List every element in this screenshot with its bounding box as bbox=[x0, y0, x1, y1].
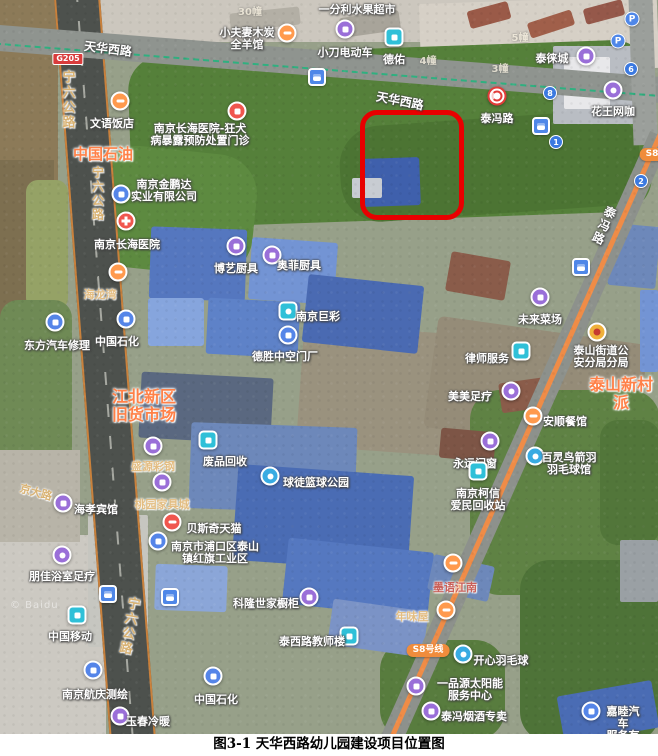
poi-icon bbox=[204, 667, 223, 686]
poi-label: 球徒篮球公园 bbox=[283, 477, 349, 489]
poi-label: 中国移动 bbox=[48, 631, 92, 643]
poi-icon bbox=[84, 661, 103, 680]
poi-icon bbox=[300, 588, 319, 607]
poi-label: 盛源彩钢 bbox=[131, 461, 175, 473]
building-number: 4幢 bbox=[420, 52, 437, 67]
poi-label: 南京市浦口区泰山 镇红旗工业区 bbox=[171, 541, 259, 565]
poi-icon bbox=[336, 20, 355, 39]
poi-label: 未来菜场 bbox=[518, 314, 562, 326]
poi-icon bbox=[153, 473, 172, 492]
parking-icon: P bbox=[625, 12, 640, 27]
poi-label: 南京柯信 爱民回收站 bbox=[451, 488, 506, 512]
poi-label: 小夫妻木炭 全羊馆 bbox=[220, 27, 275, 51]
poi-icon bbox=[524, 407, 543, 426]
project-site-highlight-box bbox=[360, 110, 464, 220]
poi-icon bbox=[149, 532, 168, 551]
poi-icon bbox=[227, 237, 246, 256]
poi-label: 中国石化 bbox=[194, 694, 238, 706]
poi-label: 中国石化 bbox=[95, 336, 139, 348]
metro-station-icon bbox=[488, 87, 507, 106]
metro-line-badge: S8 bbox=[640, 148, 658, 161]
highway-shield-badge: G205 bbox=[52, 53, 83, 65]
poi-icon bbox=[437, 601, 456, 620]
map-watermark: © Baidu bbox=[10, 600, 59, 611]
poi-icon bbox=[385, 28, 404, 47]
poi-icon bbox=[512, 342, 531, 361]
poi-label: 海孝宾馆 bbox=[74, 504, 118, 516]
bus-stop-icon bbox=[99, 585, 117, 603]
poi-icon bbox=[279, 302, 298, 321]
poi-icon bbox=[54, 494, 73, 513]
poi-label: 南京巨彩 bbox=[296, 311, 340, 323]
bus-stop-icon bbox=[161, 588, 179, 606]
poi-label: 一品源太阳能 服务中心 bbox=[437, 678, 503, 702]
bus-stop-icon bbox=[572, 258, 590, 276]
poi-label: 墨语江南 bbox=[433, 582, 477, 594]
poi-icon bbox=[502, 382, 521, 401]
poi-icon bbox=[422, 702, 441, 721]
poi-label: 泰徕城 bbox=[536, 53, 569, 65]
poi-icon bbox=[531, 288, 550, 307]
poi-label: 玉春冷暖 bbox=[126, 716, 170, 728]
poi-label: 博艺厨具 bbox=[214, 263, 258, 275]
poi-icon bbox=[577, 47, 596, 66]
area-label: 中国石油 bbox=[73, 146, 133, 163]
poi-icon bbox=[144, 437, 163, 456]
poi-icon bbox=[481, 432, 500, 451]
poi-icon bbox=[163, 513, 182, 532]
poi-icon bbox=[261, 467, 280, 486]
poi-icon bbox=[604, 81, 623, 100]
poi-label: 德胜中空门厂 bbox=[252, 351, 318, 363]
poi-label: 律师服务 bbox=[465, 353, 509, 365]
poi-icon bbox=[199, 431, 218, 450]
poi-label: 东方汽车修理 bbox=[24, 340, 90, 352]
poi-icon bbox=[53, 546, 72, 565]
poi-label: 科隆世家橱柜 bbox=[233, 598, 299, 610]
figure-caption: 图3-1 天华西路幼儿园建设项目位置图 bbox=[0, 734, 658, 756]
area-label: 江北新区 旧货市场 bbox=[112, 388, 176, 424]
road-label: 宁六公路 bbox=[90, 166, 107, 222]
poi-icon bbox=[278, 24, 297, 43]
poi-label: 美美足疗 bbox=[448, 391, 492, 403]
poi-label: 小刀电动车 bbox=[318, 47, 373, 59]
poi-icon bbox=[112, 185, 131, 204]
poi-label: 南京金鹏达 实业有限公司 bbox=[131, 179, 197, 203]
bus-stop-icon bbox=[532, 117, 550, 135]
poi-label: 南京长海医院 bbox=[94, 239, 160, 251]
poi-icon bbox=[279, 326, 298, 345]
building-number-pin: 6 bbox=[624, 62, 638, 76]
building-number: 30幢 bbox=[238, 3, 262, 18]
figure-page: © Baidu 一分利水果超市小夫妻木炭 全羊馆小刀电动车德佑泰徕城花王网咖泰冯… bbox=[0, 0, 658, 756]
poi-icon bbox=[68, 606, 87, 625]
poi-icon bbox=[46, 313, 65, 332]
poi-label: 花王网咖 bbox=[591, 106, 635, 118]
poi-label: 海龙湾 bbox=[84, 289, 117, 301]
poi-icon bbox=[469, 462, 488, 481]
poi-label: 文语饭店 bbox=[90, 118, 134, 130]
road-label: 宁六公路 bbox=[58, 70, 77, 130]
poi-icon bbox=[117, 310, 136, 329]
poi-label: 开心羽毛球 bbox=[474, 655, 529, 667]
poi-label: 百灵鸟箭羽 羽毛球馆 bbox=[542, 452, 597, 476]
poi-label: 安顺餐馆 bbox=[543, 416, 587, 428]
poi-label: 朋佳浴室足疗 bbox=[29, 571, 95, 583]
poi-icon bbox=[109, 263, 128, 282]
police-badge-icon bbox=[588, 323, 607, 342]
poi-icon bbox=[117, 212, 136, 231]
poi-label: 贝斯奇天猫 bbox=[187, 523, 242, 535]
poi-label: 德佑 bbox=[383, 54, 405, 66]
road-label: 京大路 bbox=[18, 480, 54, 504]
poi-label: 年味屋 bbox=[396, 611, 429, 623]
poi-label: 废品回收 bbox=[203, 456, 247, 468]
building-number: 3幢 bbox=[492, 60, 509, 75]
poi-icon bbox=[454, 645, 473, 664]
poi-label: 南京航庆测绘 bbox=[62, 689, 128, 701]
poi-icon bbox=[582, 702, 601, 721]
building-number-pin: 2 bbox=[634, 174, 648, 188]
poi-label: 泰冯烟酒专卖 bbox=[441, 711, 507, 723]
poi-label: 南京长海医院-狂犬 病暴露预防处置门诊 bbox=[151, 123, 250, 147]
poi-label: 泰冯路 bbox=[481, 113, 514, 125]
area-label: 泰山新村派 bbox=[584, 376, 658, 412]
poi-label: 奥菲厨具 bbox=[277, 260, 321, 272]
poi-icon bbox=[444, 554, 463, 573]
bus-stop-icon bbox=[308, 68, 326, 86]
poi-icon bbox=[111, 92, 130, 111]
poi-label: 泰山街道公 安分局分局 bbox=[574, 345, 629, 369]
poi-label: 一分利水果超市 bbox=[319, 4, 396, 16]
poi-icon bbox=[407, 677, 426, 696]
poi-label: 桃园家具城 bbox=[135, 499, 190, 511]
parking-icon: P bbox=[611, 34, 626, 49]
poi-label: 嘉睦汽车 服务有限 bbox=[606, 706, 641, 734]
satellite-map: © Baidu 一分利水果超市小夫妻木炭 全羊馆小刀电动车德佑泰徕城花王网咖泰冯… bbox=[0, 0, 658, 734]
metro-line-badge: S8号线 bbox=[407, 644, 450, 657]
building-number-pin: 8 bbox=[543, 86, 557, 100]
building-number-pin: 1 bbox=[549, 135, 563, 149]
poi-icon bbox=[228, 102, 247, 121]
building-number: 5幢 bbox=[512, 29, 529, 44]
poi-label: 泰西路教师楼 bbox=[279, 636, 345, 648]
